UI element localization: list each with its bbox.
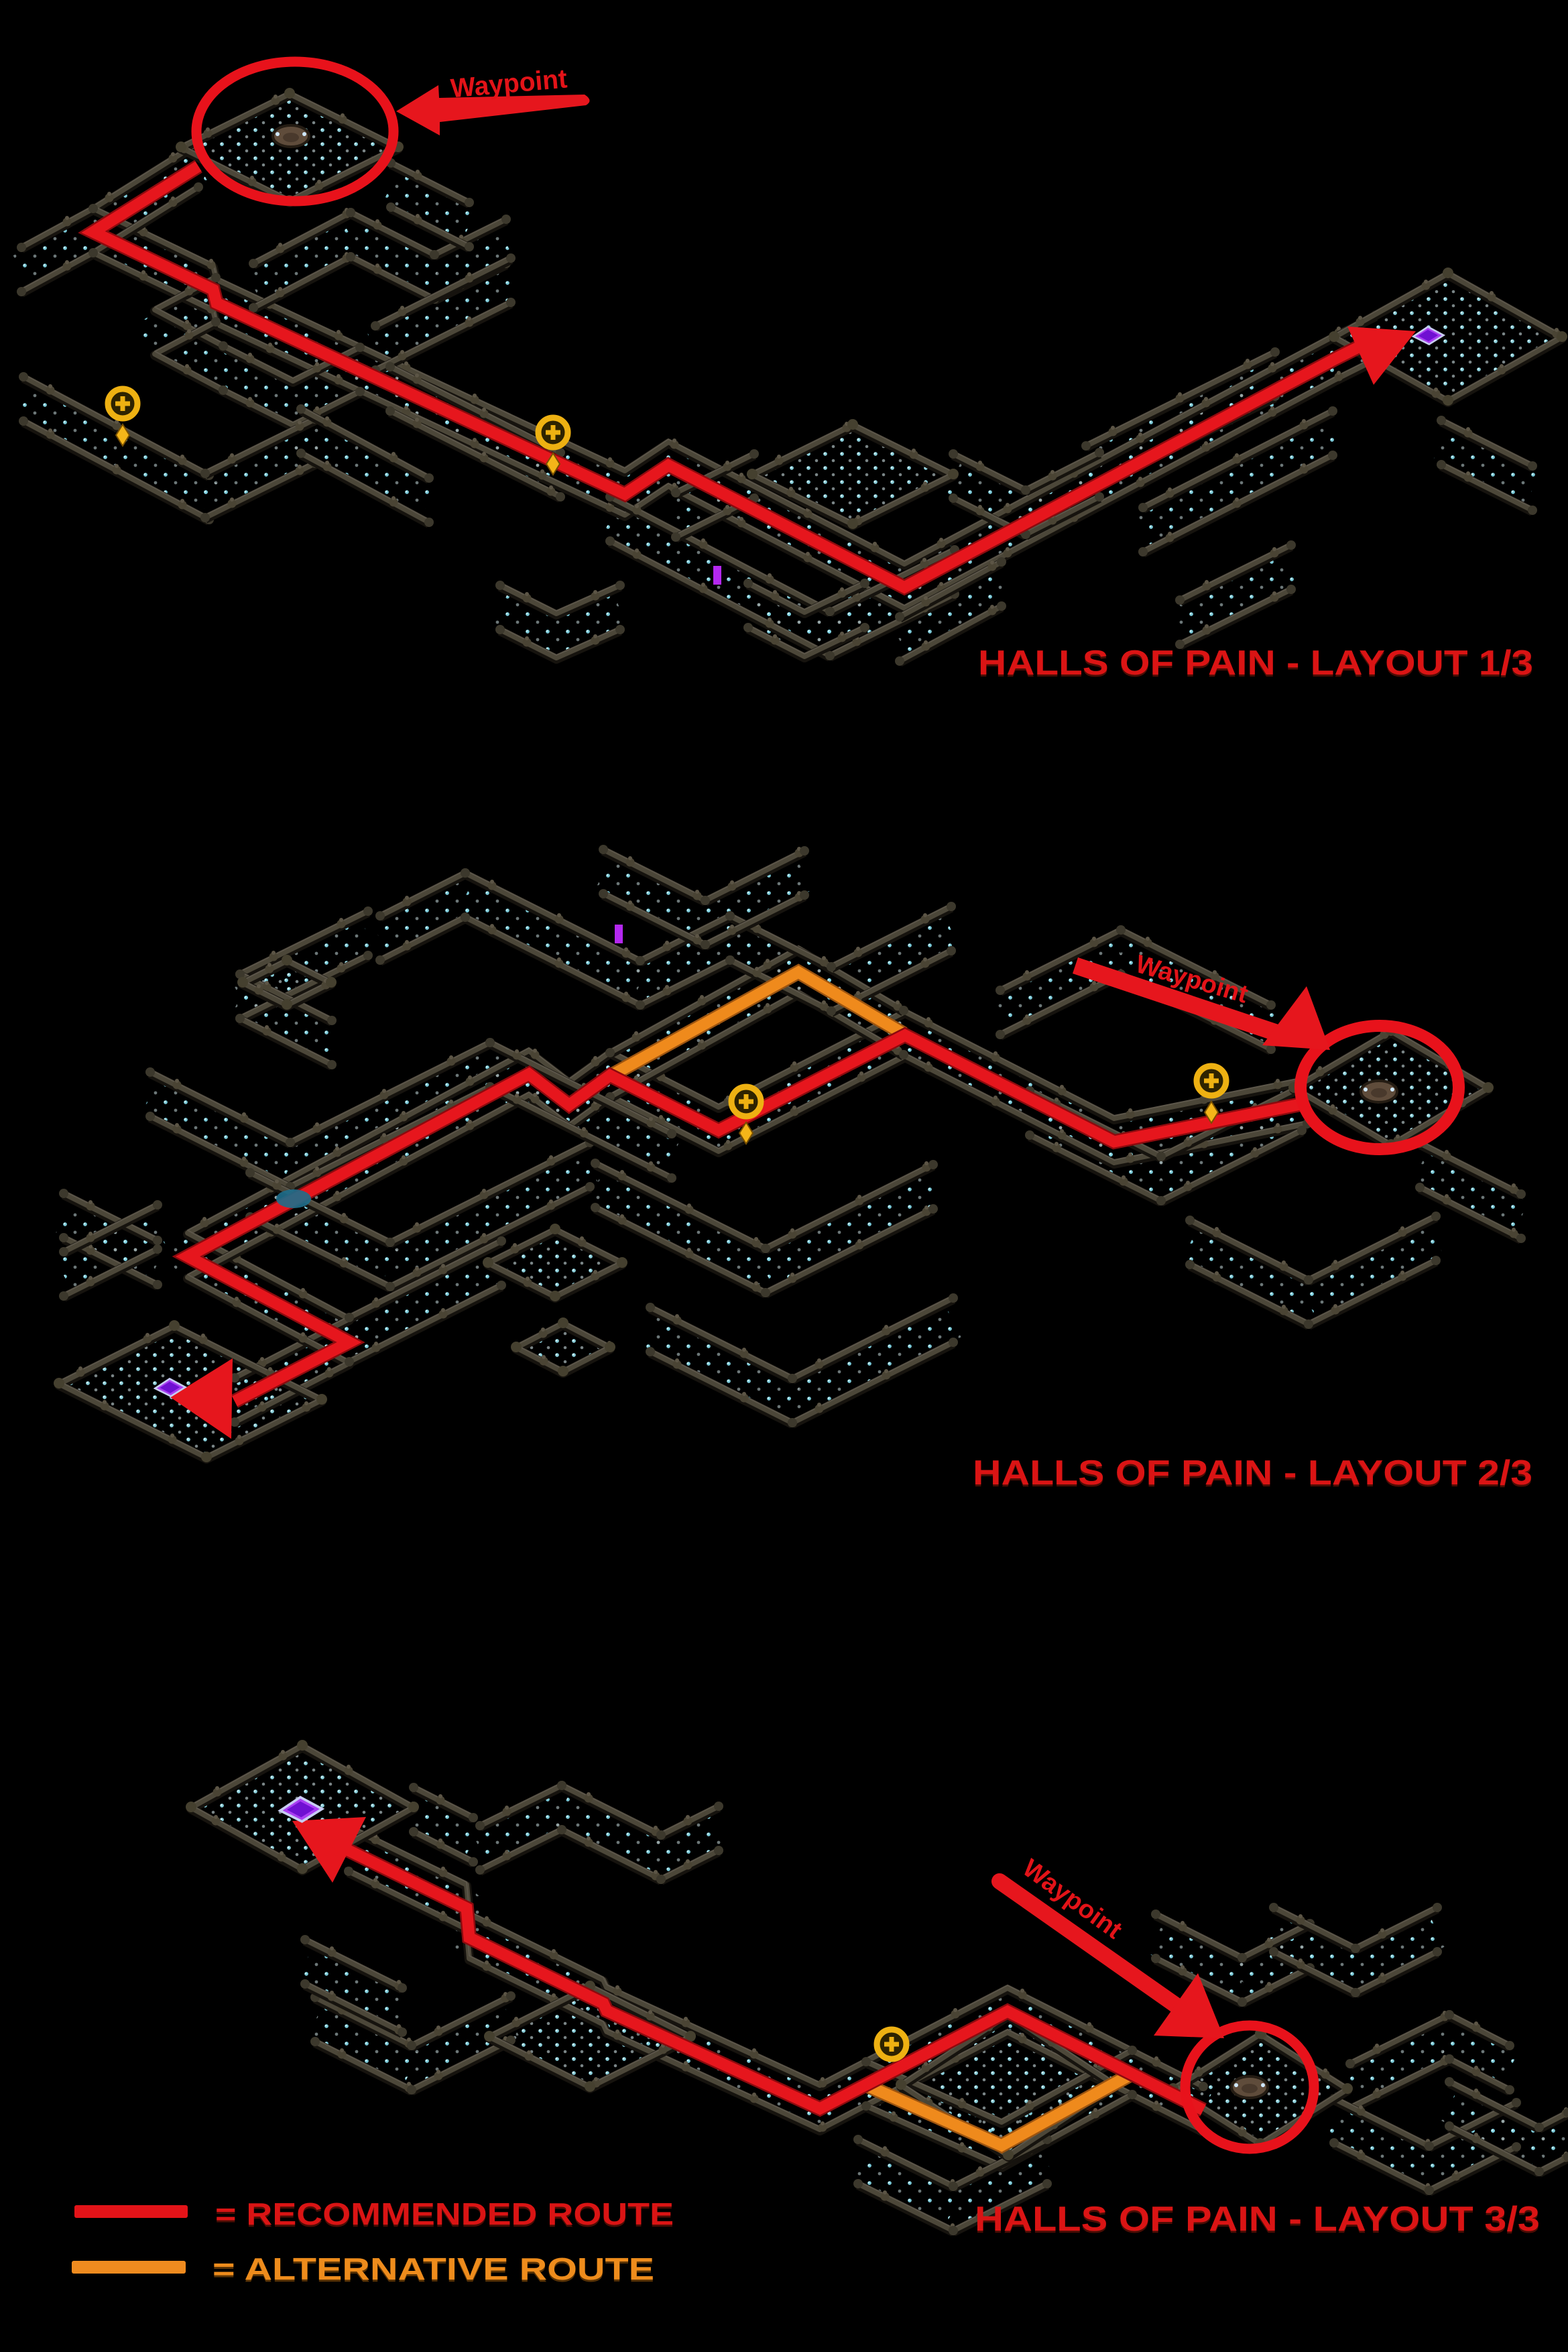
svg-text:= RECOMMENDED ROUTE: = RECOMMENDED ROUTE xyxy=(215,2196,674,2231)
svg-text:= ALTERNATIVE ROUTE: = ALTERNATIVE ROUTE xyxy=(213,2251,654,2286)
svg-text:HALLS OF PAIN - LAYOUT 2/3: HALLS OF PAIN - LAYOUT 2/3 xyxy=(973,1454,1532,1492)
svg-text:HALLS OF PAIN - LAYOUT 1/3: HALLS OF PAIN - LAYOUT 1/3 xyxy=(978,644,1533,683)
svg-text:HALLS OF PAIN - LAYOUT 3/3: HALLS OF PAIN - LAYOUT 3/3 xyxy=(975,2200,1540,2239)
